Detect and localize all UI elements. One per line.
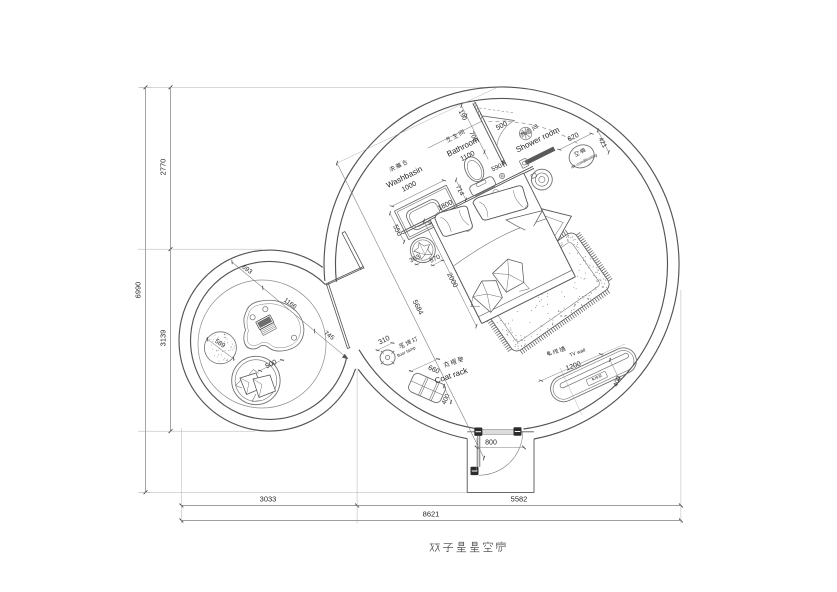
svg-text:3033: 3033: [260, 495, 277, 504]
svg-text:800: 800: [485, 440, 497, 447]
svg-text:6990: 6990: [134, 282, 143, 299]
svg-text:5582: 5582: [511, 495, 528, 504]
svg-text:3139: 3139: [159, 330, 168, 347]
svg-text:8621: 8621: [423, 510, 440, 519]
svg-text:2770: 2770: [159, 159, 168, 176]
